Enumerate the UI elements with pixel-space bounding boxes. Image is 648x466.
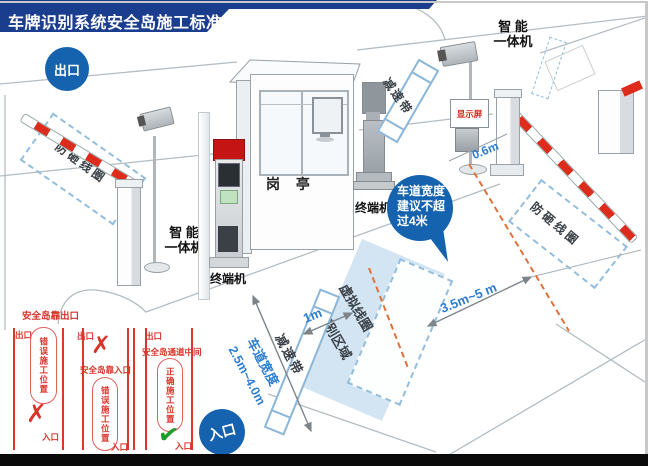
panel2-position-label: 错误施工位置	[101, 386, 110, 443]
lane-width-callout: 车道宽度 建议不超 过4米	[387, 175, 453, 241]
panel1-entry-label: 入口	[42, 431, 59, 443]
post	[198, 112, 210, 300]
panel1-wrong-mark: ✗	[26, 399, 47, 429]
bottom-right-curb	[556, 324, 648, 384]
panel3-entry-label: 入口	[175, 440, 192, 452]
panel1-position-capsule: 错误施工位置	[30, 327, 57, 404]
panel1-position-label: 错误施工位置	[39, 337, 48, 394]
panel2-position-capsule: 错误施工位置	[92, 377, 118, 451]
top-border	[0, 1, 648, 3]
display-screen-label: 显示屏	[457, 108, 483, 120]
camera-right-base	[459, 164, 487, 175]
exit-badge: 出口	[45, 47, 89, 91]
callout-line2: 建议不超	[397, 199, 453, 214]
lane-line	[82, 328, 84, 450]
band-divider	[385, 119, 403, 131]
lane-line	[13, 328, 15, 450]
kiosk-lower-panel	[218, 226, 238, 252]
barrier-pole-right-cap	[494, 89, 522, 98]
camera-left-base	[144, 262, 170, 273]
smart-machine-right-label-1: 智 能	[489, 20, 537, 35]
barrier-pole-left	[117, 184, 141, 286]
booth-label: 岗 亭	[266, 174, 316, 194]
bottom-bar	[0, 454, 648, 466]
comparison-header: 安全岛靠出口	[22, 308, 79, 322]
barrier-pole-right-base	[490, 164, 524, 176]
callout-line1: 车道宽度	[397, 184, 453, 199]
terminal-right-neck	[366, 112, 380, 120]
band-divider	[412, 72, 430, 84]
kiosk-display	[220, 190, 238, 204]
terminal-left-label: 终端机	[210, 270, 246, 287]
panel3-exit-label: 出口	[145, 330, 162, 342]
camera-right-lens-icon	[437, 49, 447, 61]
lane-line	[127, 328, 129, 450]
lane-line	[62, 328, 64, 450]
band-divider	[272, 410, 289, 419]
kiosk-base	[209, 257, 249, 268]
panel3-note: 安全岛通道中间	[142, 346, 202, 358]
page-title: 车牌识别系统安全岛施工标准	[8, 9, 223, 33]
panel2-note: 安全岛靠入口	[80, 364, 131, 376]
terminal-right-label: 终端机	[355, 199, 391, 216]
display-screen-sign: 显示屏	[450, 99, 489, 128]
barrier-support-pillar	[598, 90, 634, 154]
panel2-wrong-mark: ✗	[91, 331, 111, 360]
exit-lane-top-curb-left	[0, 62, 237, 84]
entry-lane-outer-curb	[430, 338, 648, 466]
callout-line3: 过4米	[397, 214, 453, 229]
panel2-entry-label: 入口	[111, 441, 128, 453]
barrier-pole-right	[496, 94, 520, 168]
kiosk-screen	[218, 163, 240, 187]
camera-pole-left	[153, 136, 156, 266]
diagram-canvas: 车牌识别系统安全岛施工标准 出口 入口 防砸线圈 智 能 一体机 岗 亭 终端机…	[0, 0, 648, 466]
barrier-pole-left-cap	[115, 179, 143, 188]
kiosk-led-sign	[213, 139, 245, 161]
monitor-base	[316, 137, 334, 142]
smart-machine-right-label-2: 一体机	[489, 35, 537, 50]
booth-monitor-icon	[312, 97, 343, 134]
lane-line	[133, 328, 135, 450]
panel3-position-label: 正确施工位置	[166, 367, 175, 424]
